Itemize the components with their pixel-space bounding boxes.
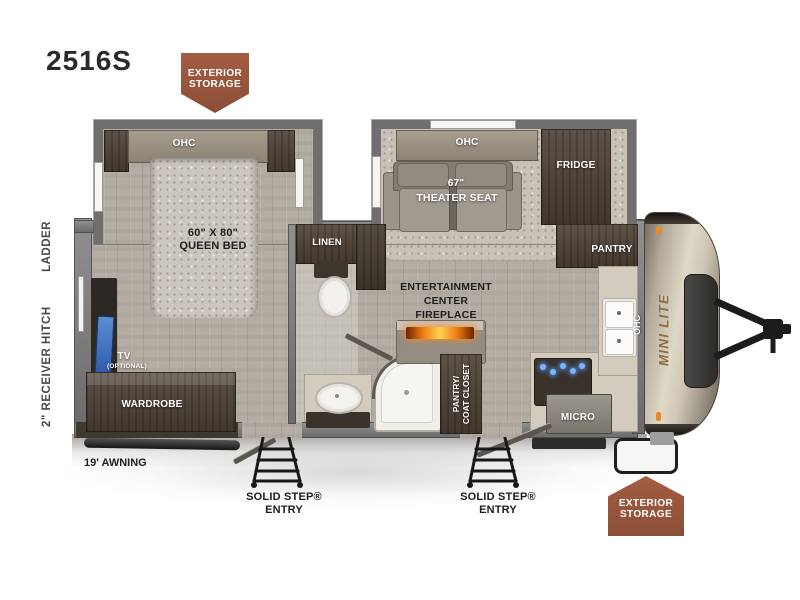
brand-logo: MINI LITE bbox=[657, 294, 672, 366]
model-number: 2516S bbox=[46, 45, 132, 77]
closet-label-line1: PANTRY/ bbox=[451, 364, 461, 424]
front-cap-rim-top bbox=[645, 213, 719, 224]
bedroom-slide-window-left bbox=[94, 162, 103, 212]
receiver-hitch-label: 2" RECEIVER HITCH bbox=[41, 306, 53, 427]
entry2-label-line2: ENTRY bbox=[479, 505, 517, 516]
stove-burner-4 bbox=[570, 368, 576, 374]
cap-foot bbox=[650, 432, 674, 445]
badge-top-line2: STORAGE bbox=[181, 79, 249, 90]
badge-bottom-line2: STORAGE bbox=[608, 509, 684, 520]
living-slide-window-left bbox=[372, 156, 381, 208]
exterior-storage-badge-top: EXTERIOR STORAGE bbox=[181, 53, 249, 113]
stove-burner-3 bbox=[560, 363, 566, 369]
stove-burner-1 bbox=[540, 364, 546, 370]
pantry-label: PANTRY bbox=[591, 245, 632, 255]
entry1-label-line2: ENTRY bbox=[265, 505, 303, 516]
floorplan-canvas: OHC 60" X 80" QUEEN BED OHC 67" THEATER … bbox=[0, 0, 800, 600]
bedroom-slide-window-right bbox=[295, 158, 304, 208]
rear-window bbox=[78, 276, 84, 332]
tv-note-label: (OPTIONAL) bbox=[107, 364, 147, 371]
nightstand-left bbox=[104, 130, 129, 172]
theater-headrest-left bbox=[397, 163, 449, 187]
closet-label-line2: COAT CLOSET bbox=[461, 364, 471, 424]
living-slide-window-top bbox=[430, 120, 516, 129]
bedroom-bath-wall bbox=[288, 224, 296, 424]
awning-label: 19' AWNING bbox=[84, 457, 147, 469]
entertainment-label-3: FIREPLACE bbox=[415, 310, 476, 321]
stove-burner-5 bbox=[579, 363, 585, 369]
vanity-front bbox=[306, 412, 370, 428]
toilet-bowl bbox=[317, 276, 352, 318]
kitchen-sink-drain-1 bbox=[617, 311, 621, 315]
entry1-label-line1: SOLID STEP® bbox=[246, 492, 322, 503]
bed-name-label: QUEEN BED bbox=[179, 241, 246, 252]
marker-light-bottom bbox=[656, 412, 661, 421]
entry-step-platform bbox=[532, 438, 606, 449]
theater-size-label: 67" bbox=[448, 179, 464, 189]
nightstand-right bbox=[267, 130, 295, 172]
entry2-steps-icon bbox=[463, 437, 525, 489]
hitch-a-frame-icon bbox=[713, 295, 793, 363]
living-ohc-label: OHC bbox=[456, 138, 479, 148]
wardrobe-top-face bbox=[87, 373, 235, 385]
entertainment-label-2: CENTER bbox=[424, 296, 468, 307]
entry1-threshold bbox=[242, 422, 302, 438]
bedroom-ohc-label: OHC bbox=[173, 139, 196, 149]
fridge bbox=[541, 129, 611, 225]
badge-top-line1: EXTERIOR bbox=[181, 68, 249, 79]
entry1-steps-icon bbox=[247, 437, 309, 489]
theater-name-label: THEATER SEAT bbox=[416, 193, 497, 204]
bed-size-label: 60" X 80" bbox=[188, 228, 238, 239]
entertainment-label-1: ENTERTAINMENT bbox=[400, 282, 492, 293]
tv-label: TV bbox=[117, 352, 130, 362]
badge-bottom-line1: EXTERIOR bbox=[608, 498, 684, 509]
kitchen-sink-drain-2 bbox=[617, 339, 621, 343]
micro-label: MICRO bbox=[561, 413, 595, 423]
rear-side-label: 2" RECEIVER HITCH LADDER bbox=[41, 221, 53, 427]
stove-burner-2 bbox=[550, 369, 556, 375]
linen-label: LINEN bbox=[312, 238, 342, 248]
fridge-label: FRIDGE bbox=[557, 161, 596, 171]
marker-light-top bbox=[656, 226, 661, 235]
pantry-coat-closet-label: PANTRY/ COAT CLOSET bbox=[451, 364, 471, 424]
bath-wall-cabinet bbox=[356, 224, 386, 290]
ladder-label: LADDER bbox=[41, 221, 53, 272]
kitchen-ohc-label: OHC bbox=[632, 315, 642, 335]
entry2-label-line1: SOLID STEP® bbox=[460, 492, 536, 503]
wardrobe-label: WARDROBE bbox=[121, 400, 182, 410]
fireplace-glow bbox=[406, 327, 474, 339]
bath-sink-drain bbox=[335, 394, 339, 398]
bath-sink bbox=[315, 382, 363, 414]
